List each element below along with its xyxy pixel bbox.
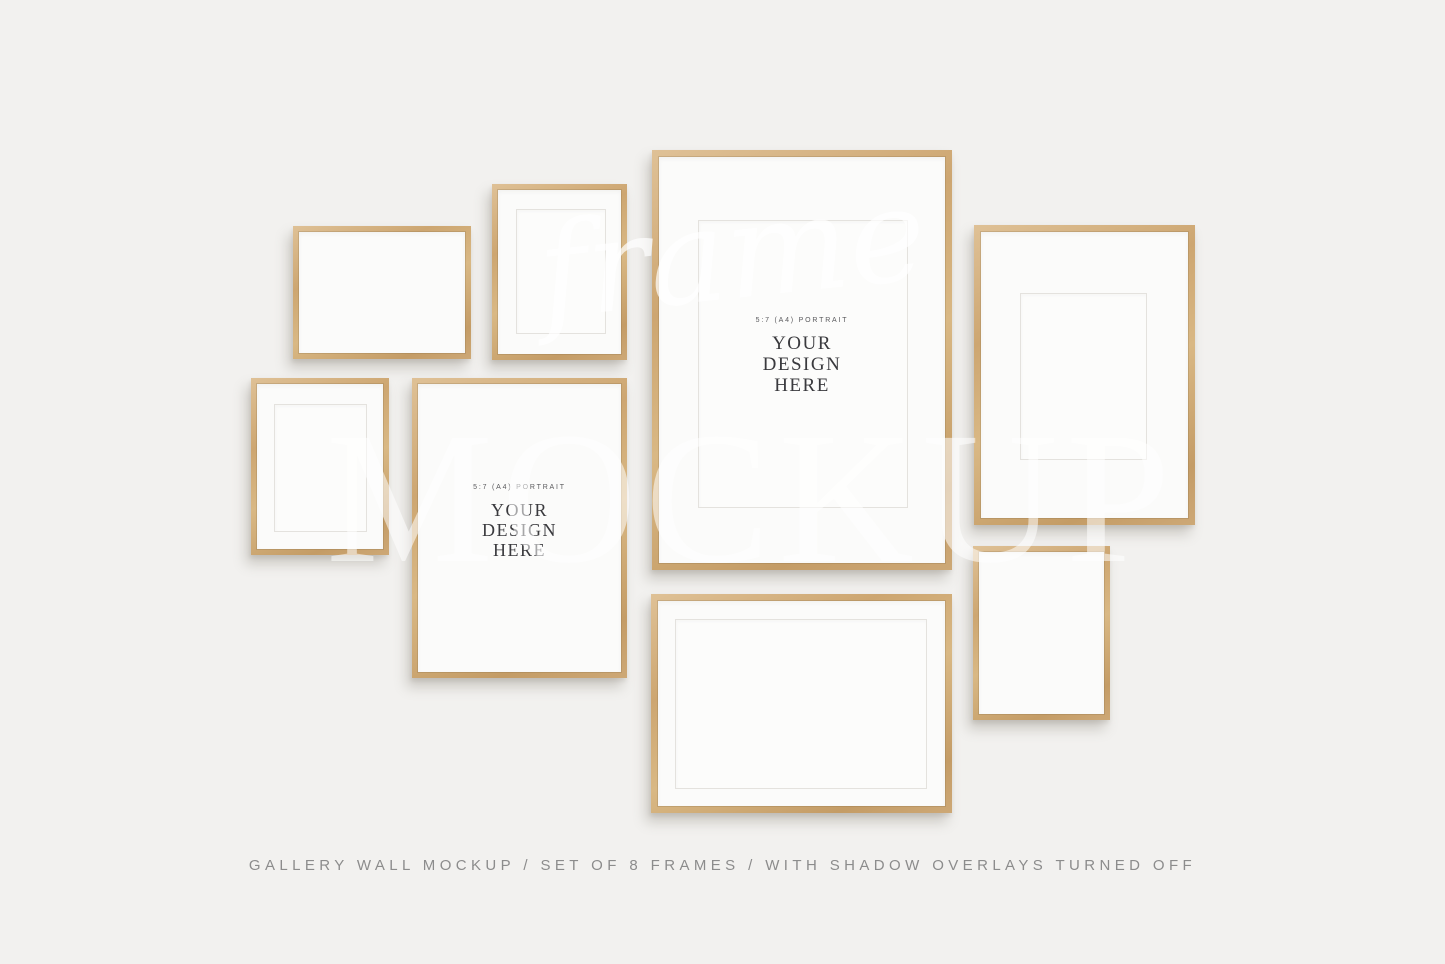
frame-5-design-line-1: YOUR (659, 333, 945, 354)
frame-5-design-line-2: DESIGN (659, 354, 945, 375)
frame-7-paper (981, 232, 1188, 518)
frame-5-design-line-3: HERE (659, 375, 945, 396)
frame-4-portrait: 5:7 (A4) PORTRAIT YOUR DESIGN HERE (412, 378, 627, 678)
frame-2-mat-opening (516, 209, 606, 334)
frame-7-portrait (974, 225, 1195, 525)
frame-1-paper (299, 232, 465, 353)
frame-8-portrait (973, 546, 1110, 720)
frame-8-paper (979, 552, 1104, 714)
frame-3-paper (257, 384, 383, 549)
frame-3-mat-opening (274, 404, 367, 532)
frame-4-placeholder: 5:7 (A4) PORTRAIT YOUR DESIGN HERE (418, 484, 621, 560)
frame-2-paper (498, 190, 621, 354)
frame-4-size-label: 5:7 (A4) PORTRAIT (418, 484, 621, 491)
frame-6-paper (658, 601, 945, 806)
frame-5-portrait-large: 5:7 (A4) PORTRAIT YOUR DESIGN HERE (652, 150, 952, 570)
frame-2-portrait (492, 184, 627, 360)
frame-6-landscape (651, 594, 952, 813)
bottom-caption: GALLERY WALL MOCKUP / SET OF 8 FRAMES / … (0, 857, 1445, 874)
frame-6-mat-opening (675, 619, 927, 789)
frame-4-paper: 5:7 (A4) PORTRAIT YOUR DESIGN HERE (418, 384, 621, 672)
frame-5-placeholder: 5:7 (A4) PORTRAIT YOUR DESIGN HERE (659, 317, 945, 396)
frame-7-mat-opening (1020, 293, 1147, 460)
frame-4-design-line-2: DESIGN (418, 520, 621, 540)
frame-5-paper: 5:7 (A4) PORTRAIT YOUR DESIGN HERE (659, 157, 945, 563)
frame-5-size-label: 5:7 (A4) PORTRAIT (659, 317, 945, 324)
frame-1-landscape (293, 226, 471, 359)
frame-4-design-line-1: YOUR (418, 500, 621, 520)
frame-3-portrait (251, 378, 389, 555)
frame-4-design-line-3: HERE (418, 540, 621, 560)
